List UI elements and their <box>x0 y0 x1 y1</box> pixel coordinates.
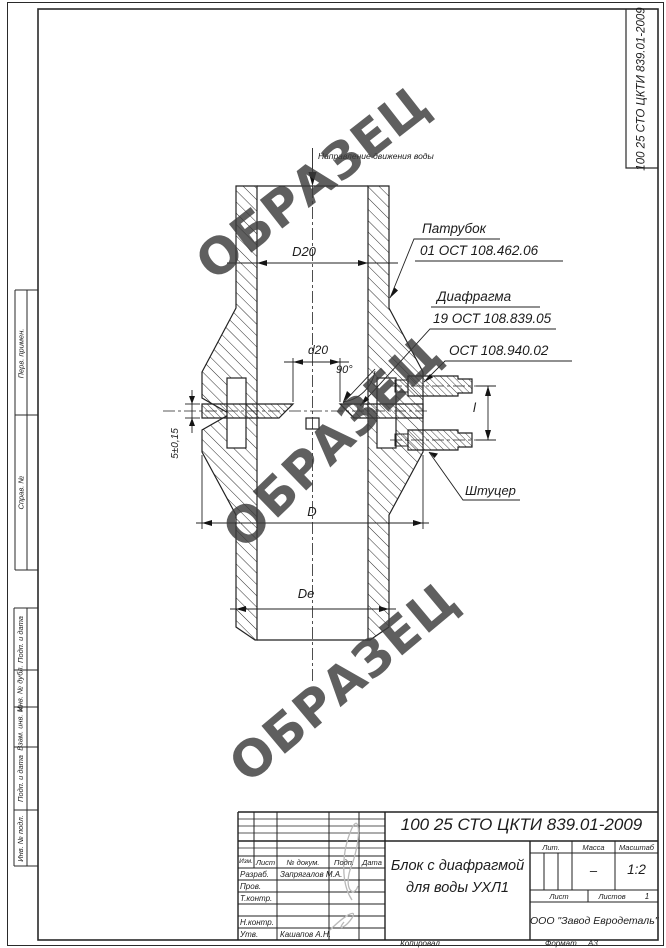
dim-label: 5±0,15 <box>170 428 181 459</box>
stamp-label: Перв. примен. <box>17 329 26 379</box>
mass-label: Масса <box>572 843 615 852</box>
col-izm: Изм. <box>238 858 254 865</box>
stamp-inv-dubl: Инв. № дубл. <box>14 670 27 707</box>
corner-stamp: 100 25 СТО ЦКТИ 839.01-2009 <box>626 10 657 168</box>
stamp-sprav-no: Справ. № <box>15 415 27 570</box>
callout-patrubok-std: 01 ОСТ 108.462.06 <box>420 243 538 258</box>
stamp-label: Справ. № <box>17 475 26 509</box>
stamp-label: Взам. инв. № <box>16 704 25 750</box>
row-nkontr: Н.контр. <box>240 918 274 927</box>
col-podp: Подп. <box>329 858 359 867</box>
format-value: А3 <box>588 939 598 948</box>
callout-diafragma-title: Диафрагма <box>437 289 511 304</box>
col-list: Лист <box>254 858 277 867</box>
dim-bottom-diameter: Dе <box>294 586 318 601</box>
dim-thickness: 5±0,15 <box>168 416 182 470</box>
listov-label: Листов <box>590 892 634 901</box>
list-label: Лист <box>530 892 588 901</box>
stamp-vzam-inv: Взам. инв. № <box>14 707 27 747</box>
row-razrab: Разраб. <box>240 870 269 879</box>
titleblock-title-line1: Блок с диафрагмой <box>385 858 530 874</box>
corner-doc-number: 100 25 СТО ЦКТИ 839.01-2009 <box>636 7 648 170</box>
listov-value: 1 <box>638 892 656 901</box>
titleblock-company: ООО "Завод Евродеталь" <box>530 915 658 927</box>
row-razrab-name: Запрягалов М.А. <box>280 870 342 879</box>
stamp-podp-data-1: Подп. и дата <box>14 608 27 670</box>
stamp-label: Подп. и дата <box>16 616 25 663</box>
row-tkontr: Т.контр. <box>240 894 272 903</box>
stamp-label: Подп. и дата <box>16 755 25 802</box>
row-prov: Пров. <box>240 882 261 891</box>
drawing-sheet: 100 25 СТО ЦКТИ 839.01-2009 Перв. примен… <box>0 0 666 948</box>
col-ndokum: № докум. <box>277 858 329 867</box>
dim-fitting-length: l <box>473 400 476 415</box>
stamp-inv-podl: Инв. № подл. <box>14 810 27 866</box>
format-label: Формат <box>545 939 577 948</box>
callout-patrubok-title: Патрубок <box>422 221 486 236</box>
kopiroval-label: Копировал <box>390 939 450 948</box>
scale-label: Масштаб <box>615 843 658 852</box>
stamp-podp-data-2: Подп. и дата <box>14 747 27 810</box>
row-utv: Утв. <box>240 930 258 939</box>
stamp-perv-primen: Перв. примен. <box>15 292 27 415</box>
stamp-label: Инв. № подл. <box>16 815 25 862</box>
callout-shtutser: Штуцер <box>465 483 516 498</box>
lit-label: Лит. <box>530 843 572 852</box>
mass-value: – <box>572 863 615 878</box>
scale-value: 1:2 <box>615 862 658 877</box>
dim-orifice: d20 <box>298 343 338 357</box>
titleblock-doc-number: 100 25 СТО ЦКТИ 839.01-2009 <box>385 815 658 835</box>
row-utv-name: Кашапов А.Н. <box>280 930 331 939</box>
col-data: Дата <box>359 858 385 867</box>
titleblock-title-line2: для воды УХЛ1 <box>385 880 530 896</box>
